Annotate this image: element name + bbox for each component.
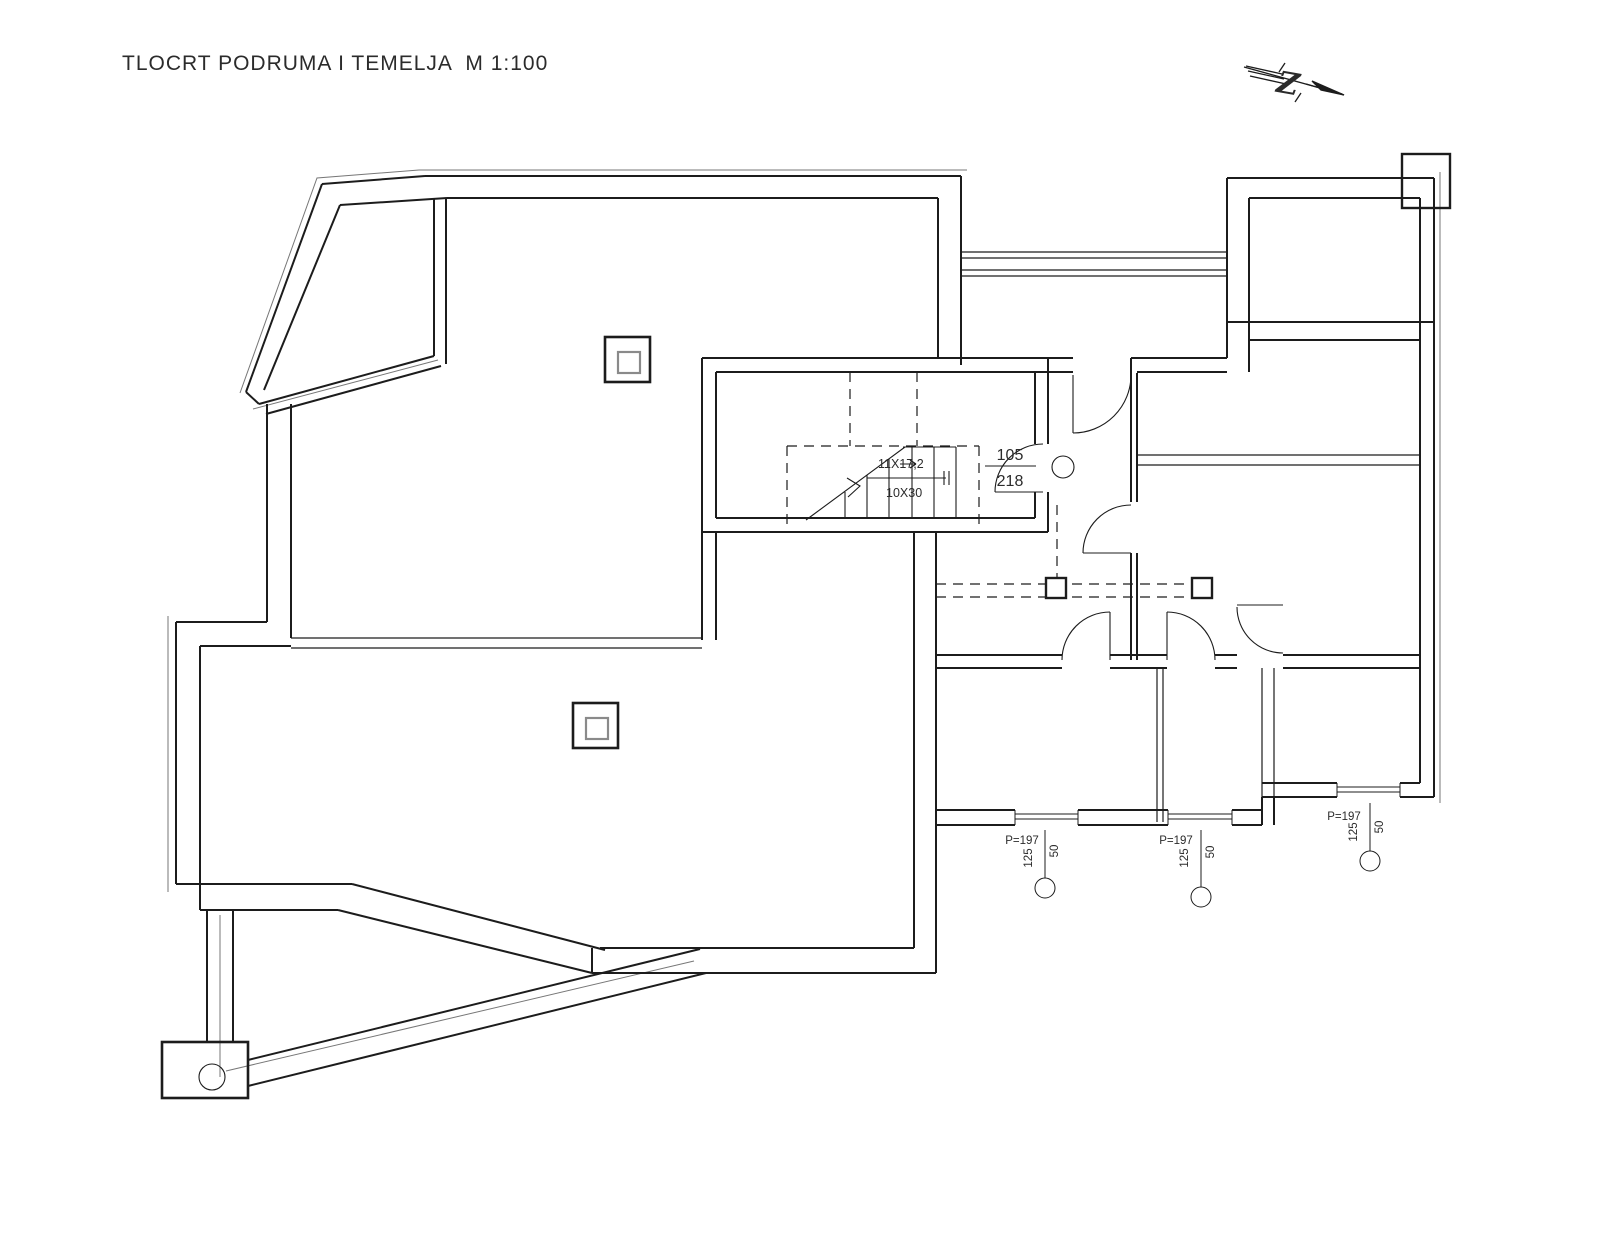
- door-width-label: 105: [997, 447, 1024, 464]
- stair-risers-label: 11X17,2: [878, 457, 924, 471]
- door-height-label: 218: [997, 473, 1024, 490]
- floor-plan-canvas: TLOCRT PODRUMA I TEMELJA M 1:100: [0, 0, 1600, 1242]
- window1-sill-label: P=197: [1005, 835, 1039, 847]
- window2-width-label: 125: [1179, 848, 1191, 867]
- window3-height-label: 50: [1374, 821, 1386, 834]
- column-footings: [162, 154, 1450, 1098]
- window3-sill-label: P=197: [1327, 811, 1361, 823]
- window2-sill-label: P=197: [1159, 835, 1193, 847]
- walls: [176, 176, 1434, 1086]
- stair-treads-label: 10X30: [886, 486, 922, 500]
- window1-width-label: 125: [1023, 848, 1035, 867]
- partition-walls: [961, 252, 1420, 822]
- column-markers: [1046, 578, 1212, 598]
- floor-plan-drawing: 11X17,2 10X30 105 218: [0, 0, 1600, 1242]
- window1-height-label: 50: [1049, 845, 1061, 858]
- window3-width-label: 125: [1348, 822, 1360, 841]
- window2-height-label: 50: [1205, 846, 1217, 859]
